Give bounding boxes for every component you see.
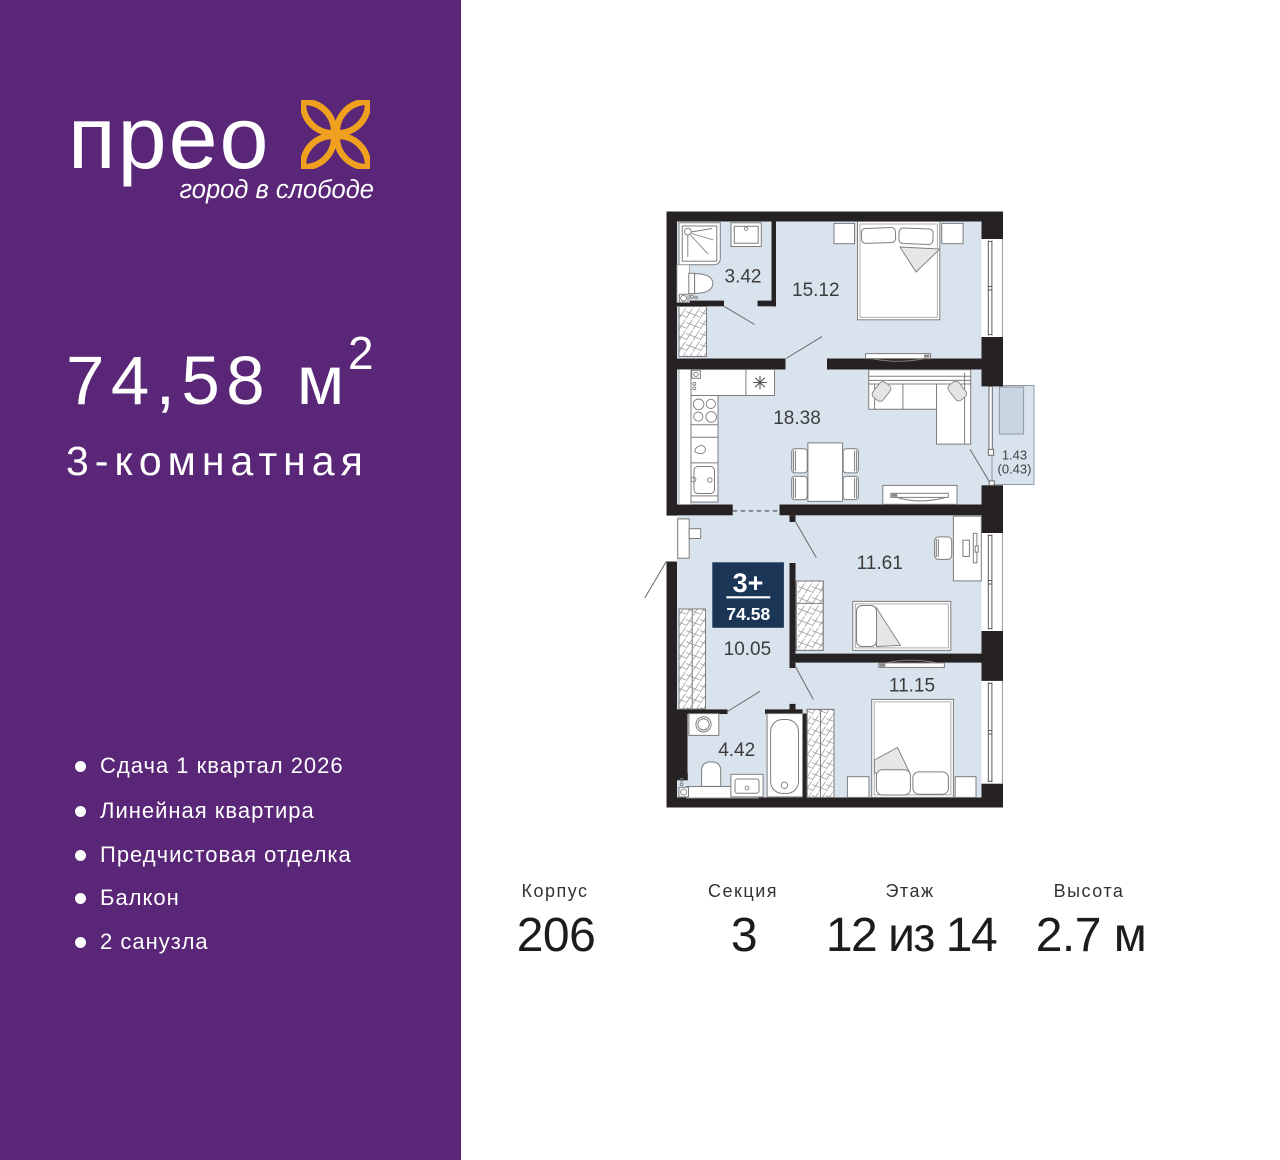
svg-text:1.43: 1.43 [1002,448,1027,463]
svg-text:(0.43): (0.43) [998,462,1032,477]
svg-text:10.05: 10.05 [724,639,772,660]
svg-text:11.61: 11.61 [857,553,903,574]
svg-text:74.58: 74.58 [726,604,770,624]
svg-text:3+: 3+ [733,568,764,598]
svg-text:15.12: 15.12 [792,280,840,301]
svg-text:4.42: 4.42 [718,740,755,761]
svg-text:3.42: 3.42 [725,267,762,288]
svg-text:18.38: 18.38 [773,408,821,429]
svg-text:11.15: 11.15 [889,675,935,696]
